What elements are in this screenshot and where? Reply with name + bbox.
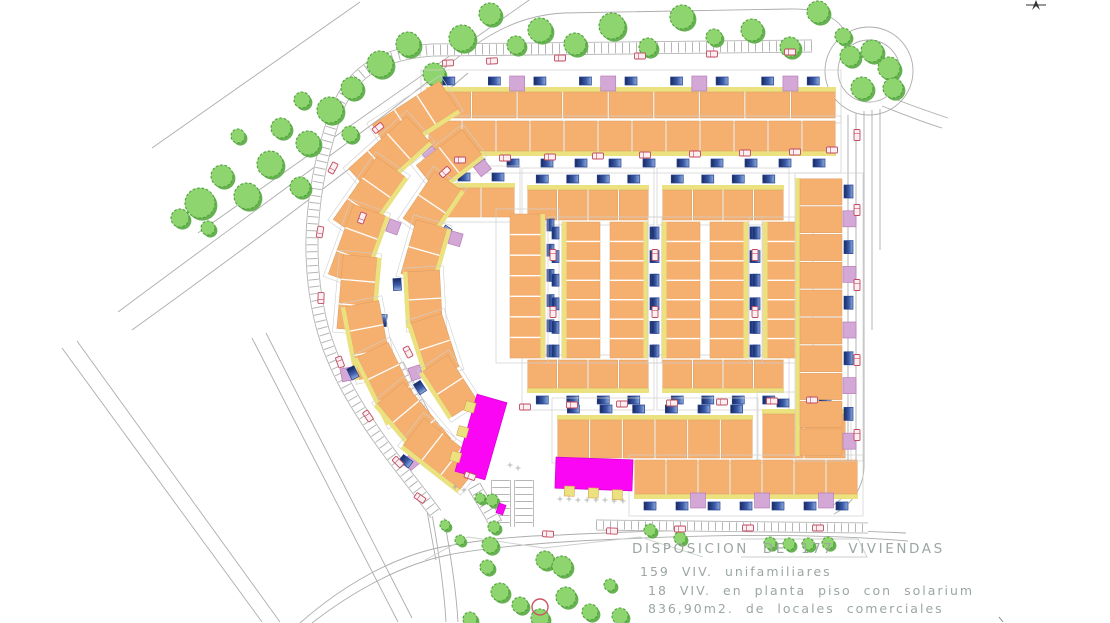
pool: [534, 77, 546, 85]
garden-strip: [796, 178, 801, 456]
pool: [652, 345, 659, 357]
pool: [813, 159, 825, 167]
garden-strip: [426, 87, 836, 92]
tree-icon: [211, 165, 233, 187]
tree-icon: [644, 524, 656, 536]
pool: [628, 396, 640, 404]
pool: [753, 274, 760, 286]
house-row: [629, 455, 863, 516]
pool: [552, 227, 559, 239]
car-body: [652, 250, 658, 261]
pool: [393, 278, 402, 290]
tree-icon: [599, 13, 625, 39]
garden-strip: [428, 151, 836, 156]
pool: [763, 175, 775, 183]
car-icon: [520, 404, 531, 410]
house-row: [552, 398, 758, 463]
pool: [652, 274, 659, 286]
car-body: [486, 58, 497, 65]
tree-icon: [341, 77, 363, 99]
car-icon: [854, 130, 860, 141]
rowhouse-strip-block: [496, 209, 559, 363]
house-unit: [724, 360, 753, 388]
tree-icon: [552, 556, 572, 576]
tick-mark: [999, 617, 1003, 622]
tree-icon: [883, 78, 903, 98]
rowhouse-strip: [662, 222, 700, 358]
entry-block: [601, 76, 616, 91]
car-body: [717, 399, 728, 405]
commercial-building: [555, 457, 633, 500]
rowhouse-strip: [763, 222, 799, 358]
pool: [702, 175, 714, 183]
garden-strip: [644, 222, 649, 358]
car-body: [555, 55, 566, 61]
tree-icon: [861, 40, 883, 62]
tree-icon: [835, 28, 851, 44]
tree-icon: [367, 51, 393, 77]
house-unit: [635, 460, 665, 494]
tree-icon: [296, 131, 320, 155]
stair-tab: [564, 486, 574, 496]
car-body: [542, 531, 553, 538]
pool: [552, 321, 559, 333]
entry-block: [819, 493, 834, 508]
car-icon: [455, 157, 466, 163]
car-icon: [316, 226, 324, 238]
tree-icon: [512, 597, 528, 613]
pool: [844, 296, 853, 309]
tree-icon: [231, 129, 245, 143]
entry-block: [843, 378, 856, 394]
car-icon: [813, 525, 824, 531]
tree-icon: [741, 19, 763, 41]
house-unit: [754, 190, 783, 220]
pool: [652, 227, 659, 239]
pool: [492, 173, 504, 181]
house-unit: [699, 460, 729, 494]
tree-icon: [290, 177, 310, 197]
car-body: [743, 525, 754, 531]
car-icon: [593, 153, 604, 159]
tree-icon: [491, 583, 509, 601]
car-icon: [486, 58, 497, 65]
house-unit: [700, 92, 744, 118]
pool: [844, 352, 853, 365]
car-icon: [567, 402, 578, 408]
house-unit: [803, 121, 835, 151]
house-unit: [589, 360, 618, 388]
tree-icon: [201, 221, 215, 235]
garden-strip: [527, 388, 649, 393]
house-unit: [482, 188, 514, 217]
house-unit: [599, 121, 631, 151]
car-icon: [550, 307, 556, 318]
car-body: [740, 150, 751, 156]
car-icon: [545, 154, 556, 160]
legend-line-unifamiliares: 159 VIV. unifamiliares: [640, 564, 974, 579]
car-icon: [767, 398, 778, 404]
pool: [575, 159, 587, 167]
car-icon: [827, 147, 838, 153]
pool: [536, 175, 548, 183]
car-icon: [667, 400, 678, 406]
house-unit: [800, 207, 842, 233]
car-body: [316, 226, 324, 238]
house-unit: [800, 262, 842, 288]
house-unit: [565, 121, 597, 151]
car-body: [827, 147, 838, 153]
car-body: [675, 526, 686, 532]
house-unit: [667, 460, 697, 494]
house-row: [657, 168, 789, 225]
house-unit: [763, 460, 793, 494]
car-body: [606, 528, 617, 534]
rowhouse-strip-block: [548, 217, 662, 363]
entry-block: [691, 493, 706, 508]
site-plan-canvas: [0, 0, 1110, 623]
car-icon: [752, 307, 758, 318]
car-icon: [550, 250, 556, 261]
entry-block: [755, 493, 770, 508]
entry-block: [692, 76, 707, 91]
tree-icon: [475, 493, 485, 503]
pool: [702, 396, 714, 404]
car-body: [807, 397, 818, 403]
house-unit: [735, 121, 767, 151]
car-body: [593, 153, 604, 159]
car-icon: [743, 525, 754, 531]
pool: [844, 407, 853, 420]
house-unit: [558, 420, 589, 458]
tree-icon: [479, 3, 501, 25]
tree-icon: [342, 126, 358, 142]
legend-line-locales: 836,90m2. de locales comerciales: [648, 601, 974, 616]
tree-icon: [423, 63, 445, 85]
tree-icon: [396, 32, 420, 56]
car-icon: [854, 355, 860, 366]
house-unit: [589, 190, 618, 220]
pool: [625, 77, 637, 85]
pool: [716, 77, 728, 85]
rowhouse-strip: [610, 222, 648, 358]
pool: [644, 502, 656, 510]
car-body: [550, 307, 556, 318]
pool: [671, 175, 683, 183]
rowhouse-strip: [710, 222, 748, 358]
housing-blocks-layer: [323, 70, 863, 516]
pool: [844, 241, 853, 254]
car-icon: [617, 401, 628, 407]
pool: [552, 345, 559, 357]
house-unit: [800, 401, 842, 427]
road-line: [62, 348, 262, 622]
pool: [844, 185, 853, 198]
house-unit: [800, 346, 842, 372]
stair-tab: [588, 488, 598, 498]
car-body: [813, 525, 824, 531]
pool: [762, 77, 774, 85]
car-icon: [740, 150, 751, 156]
tree-icon: [851, 77, 873, 99]
car-icon: [640, 152, 651, 158]
car-icon: [442, 60, 453, 67]
tree-icon: [482, 537, 498, 553]
stair-tab: [612, 490, 622, 500]
house-unit: [619, 360, 648, 388]
car-body: [455, 157, 466, 163]
car-icon: [555, 55, 566, 61]
tree-icon: [807, 1, 829, 23]
pool: [777, 399, 789, 407]
house-unit: [609, 92, 653, 118]
house-unit: [800, 429, 842, 455]
tree-icon: [840, 46, 860, 66]
pool: [676, 502, 688, 510]
tree-icon: [706, 29, 722, 45]
car-body: [752, 307, 758, 318]
legend-line-solarium: 18 VIV. en planta piso con solarium: [648, 583, 974, 598]
pool: [628, 175, 640, 183]
pool: [633, 405, 645, 413]
tree-icon: [582, 604, 598, 620]
house-unit: [497, 121, 529, 151]
pool: [443, 77, 455, 85]
car-body: [854, 205, 860, 216]
car-icon: [675, 526, 686, 532]
pool: [731, 405, 743, 413]
house-unit: [531, 121, 563, 151]
car-icon: [652, 307, 658, 318]
pool: [732, 396, 744, 404]
house-unit: [688, 420, 719, 458]
pool: [807, 77, 819, 85]
car-body: [767, 398, 778, 404]
house-unit: [528, 360, 557, 388]
car-icon: [854, 280, 860, 291]
car-body: [752, 250, 758, 261]
pool: [753, 321, 760, 333]
house-unit: [558, 360, 587, 388]
car-body: [790, 149, 801, 155]
car-body: [550, 250, 556, 261]
pool: [804, 502, 816, 510]
rowhouse-strip: [510, 214, 545, 358]
road-line: [444, 518, 458, 622]
tree-icon: [257, 151, 283, 177]
house-unit: [663, 360, 692, 388]
tree-icon: [294, 92, 310, 108]
car-icon: [318, 292, 324, 303]
car-body: [854, 430, 860, 441]
car-icon: [790, 149, 801, 155]
tree-icon: [878, 57, 900, 79]
tree-icon: [528, 18, 552, 42]
car-icon: [328, 162, 338, 175]
house-unit: [655, 92, 699, 118]
tree-icon: [449, 25, 475, 51]
house-unit: [724, 190, 753, 220]
garden-strip: [744, 222, 749, 358]
tree-icon: [185, 188, 215, 218]
pool: [708, 502, 720, 510]
tree-icon: [604, 579, 616, 591]
pool: [753, 345, 760, 357]
house-unit: [558, 190, 587, 220]
pool: [488, 77, 500, 85]
road-line: [77, 341, 280, 622]
pool: [552, 274, 559, 286]
tree-icon: [488, 521, 500, 533]
tree-icon: [171, 209, 189, 227]
pool: [745, 159, 757, 167]
pool: [600, 405, 612, 413]
garden-strip: [763, 222, 768, 358]
car-body: [785, 49, 796, 55]
house-unit: [623, 420, 654, 458]
pool: [772, 502, 784, 510]
car-icon: [542, 531, 553, 538]
car-body: [667, 400, 678, 406]
car-body: [854, 130, 860, 141]
car-icon: [717, 399, 728, 405]
car-body: [640, 152, 651, 158]
pool: [536, 396, 548, 404]
garden-strip: [662, 185, 784, 190]
car-body: [652, 307, 658, 318]
house-unit: [693, 360, 722, 388]
pool: [836, 502, 848, 510]
garden-strip: [527, 185, 649, 190]
car-body: [617, 401, 628, 407]
car-body: [442, 60, 453, 67]
house-unit: [731, 460, 761, 494]
house-unit: [693, 190, 722, 220]
house-unit: [769, 121, 801, 151]
pool: [732, 175, 744, 183]
car-body: [520, 404, 531, 410]
pool: [671, 77, 683, 85]
house-unit: [795, 460, 825, 494]
legend-title: DISPOSICION DE 177 VIVIENDAS: [632, 541, 974, 557]
tree-icon: [317, 97, 343, 123]
entry-block: [783, 76, 798, 91]
entry-block: [510, 76, 525, 91]
tree-icon: [564, 33, 586, 55]
car-icon: [785, 49, 796, 55]
house-unit: [619, 190, 648, 220]
house-unit: [800, 318, 842, 344]
house-unit: [791, 92, 835, 118]
car-body: [318, 292, 324, 303]
pool: [711, 159, 723, 167]
pool: [740, 502, 752, 510]
car-icon: [403, 346, 413, 359]
car-body: [854, 280, 860, 291]
pool: [698, 405, 710, 413]
road-line: [890, 97, 948, 118]
house-unit: [563, 92, 607, 118]
tree-icon: [507, 36, 525, 54]
pool: [597, 396, 609, 404]
car-icon: [854, 430, 860, 441]
house-unit: [667, 121, 699, 151]
pool: [652, 321, 659, 333]
tree-icon: [612, 608, 628, 623]
car-body: [635, 53, 646, 59]
car-icon: [500, 155, 511, 161]
house-unit: [590, 420, 621, 458]
pool: [597, 175, 609, 183]
house-unit: [472, 92, 516, 118]
car-body: [500, 155, 511, 161]
house-unit: [746, 92, 790, 118]
house-unit: [800, 179, 842, 205]
car-icon: [635, 53, 646, 59]
pool: [643, 159, 655, 167]
car-body: [567, 402, 578, 408]
pool: [579, 77, 591, 85]
house-unit: [663, 190, 692, 220]
tree-icon: [486, 494, 498, 506]
house-unit: [656, 420, 687, 458]
car-body: [854, 355, 860, 366]
entry-block: [843, 322, 856, 338]
house-unit: [754, 360, 783, 388]
east-house-column: [795, 173, 863, 461]
car-body: [545, 154, 556, 160]
plan-legend: DISPOSICION DE 177 VIVIENDAS 159 VIV. un…: [632, 541, 974, 616]
car-icon: [707, 51, 718, 57]
car-body: [403, 346, 413, 359]
car-body: [328, 162, 338, 175]
car-body: [707, 51, 718, 57]
garden-strip: [662, 222, 667, 358]
car-icon: [690, 151, 701, 157]
garden-strip: [541, 214, 546, 358]
house-unit: [721, 420, 752, 458]
car-icon: [652, 250, 658, 261]
car-icon: [752, 250, 758, 261]
rowhouse-strip-block: [648, 217, 762, 363]
house-unit: [701, 121, 733, 151]
house-unit: [827, 460, 857, 494]
tree-icon: [440, 520, 450, 530]
rowhouse-strip: [562, 222, 600, 358]
tree-icon: [234, 183, 260, 209]
garden-strip: [557, 415, 753, 420]
pool: [779, 159, 791, 167]
house-unit: [518, 92, 562, 118]
tree-icon: [463, 612, 477, 623]
tree-icon: [480, 560, 494, 574]
tree-icon: [271, 118, 291, 138]
car-icon: [606, 528, 617, 534]
pool: [609, 159, 621, 167]
house-unit: [633, 121, 665, 151]
house-row: [421, 70, 841, 123]
pool: [677, 159, 689, 167]
tree-icon: [556, 587, 576, 607]
tree-icon: [670, 5, 694, 29]
pool: [567, 175, 579, 183]
house-unit: [800, 290, 842, 316]
house-unit: [800, 373, 842, 399]
site-plan-page: DISPOSICION DE 177 VIVIENDAS 159 VIV. un…: [0, 0, 1110, 623]
tree-icon: [536, 551, 554, 569]
car-icon: [854, 205, 860, 216]
car-body: [690, 151, 701, 157]
